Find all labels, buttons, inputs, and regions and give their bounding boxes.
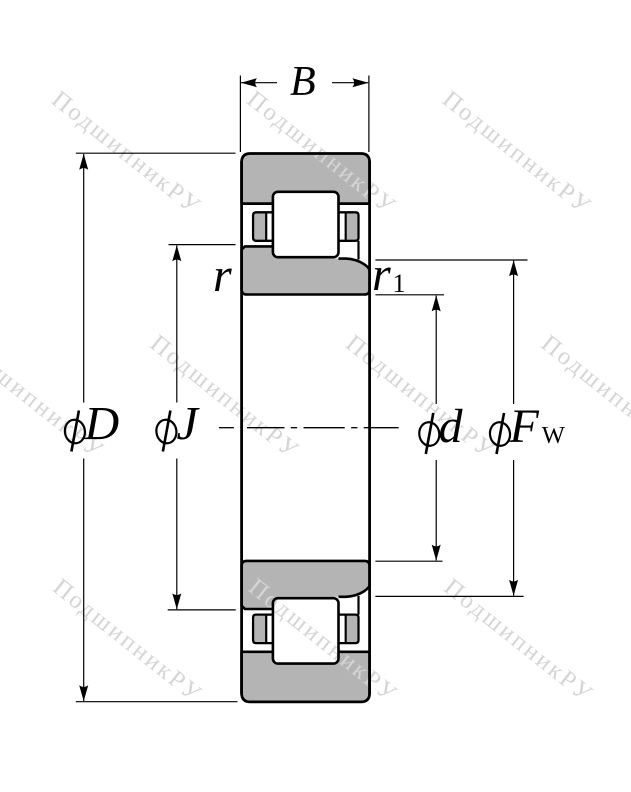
svg-text:J: J [177, 398, 201, 451]
svg-text:1: 1 [393, 269, 406, 298]
svg-text:d: d [439, 400, 464, 453]
svg-text:B: B [290, 59, 316, 105]
svg-text:F: F [509, 400, 540, 453]
svg-text:r: r [372, 248, 391, 301]
svg-text:D: D [84, 398, 120, 451]
svg-text:r: r [213, 249, 232, 302]
svg-text:W: W [542, 422, 566, 449]
